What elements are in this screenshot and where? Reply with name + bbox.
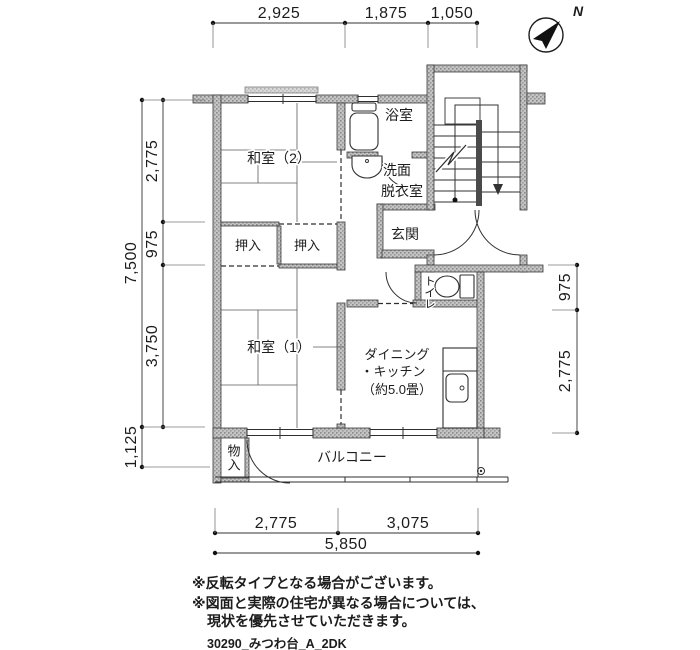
compass: N [529, 3, 584, 52]
label-monoire: 物入 [226, 444, 241, 472]
wall-segment [427, 65, 527, 72]
toilet-bowl [435, 276, 459, 297]
wall-segment [527, 93, 545, 104]
plan-id: 30290_みつわ台_A_2DK [207, 636, 347, 650]
upper-flight-outline [445, 98, 480, 124]
floor-plan-svg: 2,925 1,875 1,050 7,500 1,125 2,775 975 … [0, 0, 700, 650]
unit-entry-door-arc [434, 210, 479, 255]
window-sill-hatch [245, 87, 318, 93]
dim-bottom-total: 5,850 [325, 536, 368, 553]
dim-bottom-1: 2,775 [255, 515, 298, 532]
wall-segment [213, 428, 247, 438]
label-dk-3: （約5.0畳） [362, 382, 432, 397]
note-line-1: ※反転タイプとなる場合がございます。 [192, 575, 442, 591]
bathtub [350, 113, 378, 150]
wall-segment [520, 65, 527, 210]
compass-north-label: N [573, 3, 584, 19]
note-line-3: 現状を優先させていただきます。 [207, 613, 416, 629]
wall-segment [337, 103, 345, 150]
note-line-2: ※図面と実際の住宅が異なる場合については、 [192, 595, 485, 611]
label-dk-1: ダイニング [364, 347, 429, 362]
label-dk-2: ・キッチン [360, 364, 425, 379]
window-washitsu2 [248, 94, 316, 104]
wall-segment [484, 428, 500, 438]
label-washitsu2: 和室（2） [247, 150, 311, 166]
dim-left-3: 3,750 [144, 325, 161, 368]
wall-segment [378, 95, 434, 103]
stair-down-arrowhead [493, 184, 503, 195]
wall-segment [427, 65, 434, 210]
wall-segment [347, 300, 378, 307]
dim-left-2: 975 [144, 230, 161, 258]
wall-segment [213, 95, 221, 483]
dim-left-outer: 7,500 [123, 242, 140, 285]
staircase [434, 98, 520, 206]
neighbor-entry-door-arc [475, 210, 520, 255]
wall-segment [277, 226, 281, 264]
dim-right-1: 975 [557, 273, 574, 301]
wall-segment [337, 222, 345, 270]
dim-left-1: 2,775 [144, 140, 161, 183]
label-oshiire-left: 押入 [235, 238, 261, 253]
label-washitsu1: 和室（1） [247, 339, 311, 355]
balcony-sliding-door-washitsu1 [247, 427, 313, 439]
label-balcony: バルコニー [317, 449, 387, 465]
label-bathroom: 浴室 [385, 107, 413, 123]
label-toilet: トイレ [423, 275, 435, 310]
floor-plan-page: 2,925 1,875 1,050 7,500 1,125 2,775 975 … [0, 0, 700, 650]
label-washroom-2: 脱衣室 [381, 183, 423, 199]
toilet-door-arc [386, 272, 417, 303]
dim-right-2: 2,775 [557, 350, 574, 393]
wall-segment [377, 204, 435, 210]
wall-segment [337, 424, 345, 428]
dim-left-balcony: 1,125 [123, 426, 140, 469]
balcony-drain-center [480, 470, 482, 472]
shower-pan [352, 103, 376, 111]
dim-bottom-2: 3,075 [387, 515, 430, 532]
wall-segment [477, 272, 484, 428]
wall-segment [382, 250, 434, 258]
label-oshiire-right: 押入 [294, 238, 320, 253]
wall-segment [279, 264, 337, 268]
dim-top-1: 2,925 [258, 5, 301, 22]
stair-start-dot [453, 198, 458, 203]
stair-treads-right [482, 132, 520, 192]
dim-top-2: 1,875 [365, 5, 408, 22]
wall-segment [316, 95, 358, 103]
dimension-lines: 2,925 1,875 1,050 7,500 1,125 2,775 975 … [123, 5, 579, 555]
toilet-tank [460, 275, 474, 298]
dim-top-3: 1,050 [431, 5, 474, 22]
window-bathroom [358, 95, 378, 103]
label-washroom-1: 洗面 [383, 162, 411, 178]
kitchen-sink [446, 374, 468, 402]
wall-segment [221, 222, 279, 226]
wall-segment [415, 265, 543, 272]
balcony-sliding-door-dk [370, 427, 437, 439]
stair-divider [476, 120, 482, 206]
wall-segment [437, 428, 484, 438]
wall-segment [337, 303, 345, 390]
wall-segment [313, 428, 370, 438]
stair-break-zigzag [436, 145, 466, 172]
notes: ※反転タイプとなる場合がございます。 ※図面と実際の住宅が異なる場合については、… [192, 575, 485, 650]
wall-segment [221, 478, 249, 482]
label-genkan: 玄関 [391, 226, 419, 242]
